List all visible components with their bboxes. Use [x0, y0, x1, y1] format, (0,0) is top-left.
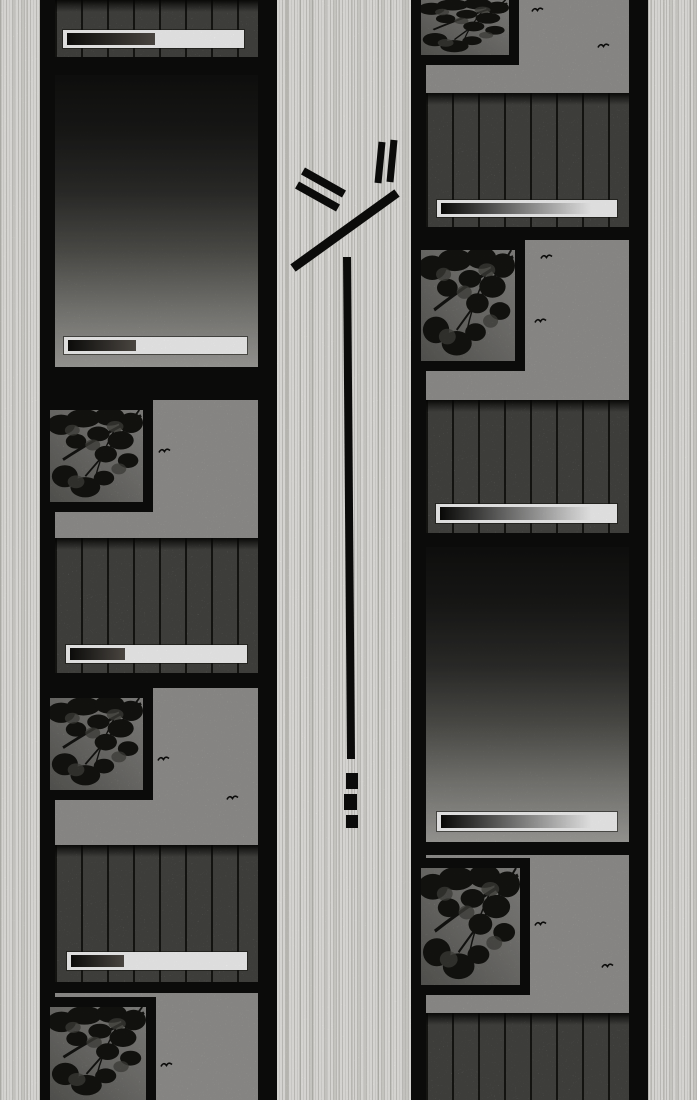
motion-dot — [344, 794, 357, 810]
blurred-caption-bar — [67, 952, 247, 970]
motion-dot — [346, 815, 358, 828]
blurred-caption-bar — [437, 200, 617, 217]
caption-gradient-fill — [440, 507, 591, 520]
blurred-caption-bar — [437, 812, 617, 831]
tree-foliage-picture — [50, 1007, 146, 1100]
motion-stroke — [293, 193, 397, 268]
tree-foliage-picture — [421, 868, 520, 985]
bird-icon — [534, 316, 547, 325]
caption-gradient-fill — [68, 340, 136, 351]
blurred-caption-bar — [63, 30, 244, 48]
caption-gradient-fill — [70, 648, 125, 660]
caption-gradient-fill — [67, 33, 155, 45]
bird-icon — [540, 252, 553, 261]
bird-icon — [597, 41, 610, 50]
film-grain-texture — [426, 547, 629, 842]
framed-tree-photo — [40, 997, 156, 1100]
blurred-caption-bar — [64, 337, 247, 354]
bird-icon — [226, 793, 239, 802]
motion-stroke — [378, 142, 382, 183]
bird-icon — [534, 919, 547, 928]
blurred-caption-bar — [436, 504, 617, 523]
bird-icon — [158, 446, 171, 455]
caption-gradient-fill — [71, 955, 124, 967]
blurred-caption-bar — [66, 645, 247, 663]
framed-tree-photo — [411, 240, 525, 371]
tree-foliage-picture — [50, 410, 143, 502]
framed-tree-photo — [411, 0, 519, 65]
tree-foliage-picture — [50, 698, 143, 790]
bird-icon — [531, 5, 544, 14]
tree-foliage-picture — [421, 250, 515, 361]
plank-fence — [426, 1013, 629, 1100]
panel-dusk-gradient-1 — [55, 75, 258, 367]
bird-icon — [601, 961, 614, 970]
bird-icon — [157, 754, 170, 763]
panel-fence-strip — [55, 0, 258, 57]
motion-dot — [346, 773, 358, 789]
motion-stroke — [297, 185, 338, 208]
film-grain-texture — [55, 0, 258, 57]
caption-gradient-fill — [441, 815, 591, 828]
bird-icon — [160, 1060, 173, 1069]
panel-dusk-gradient-2 — [426, 547, 629, 842]
film-grain-texture — [426, 1013, 629, 1100]
film-grain-texture — [55, 75, 258, 367]
framed-tree-photo — [40, 400, 153, 512]
framed-tree-photo — [40, 688, 153, 800]
motion-stroke — [347, 257, 351, 759]
motion-stroke — [303, 171, 344, 194]
manga-page — [0, 0, 697, 1100]
tree-foliage-picture — [421, 0, 509, 55]
motion-stroke — [390, 140, 394, 182]
caption-gradient-fill — [441, 203, 591, 214]
framed-tree-photo — [411, 858, 530, 995]
